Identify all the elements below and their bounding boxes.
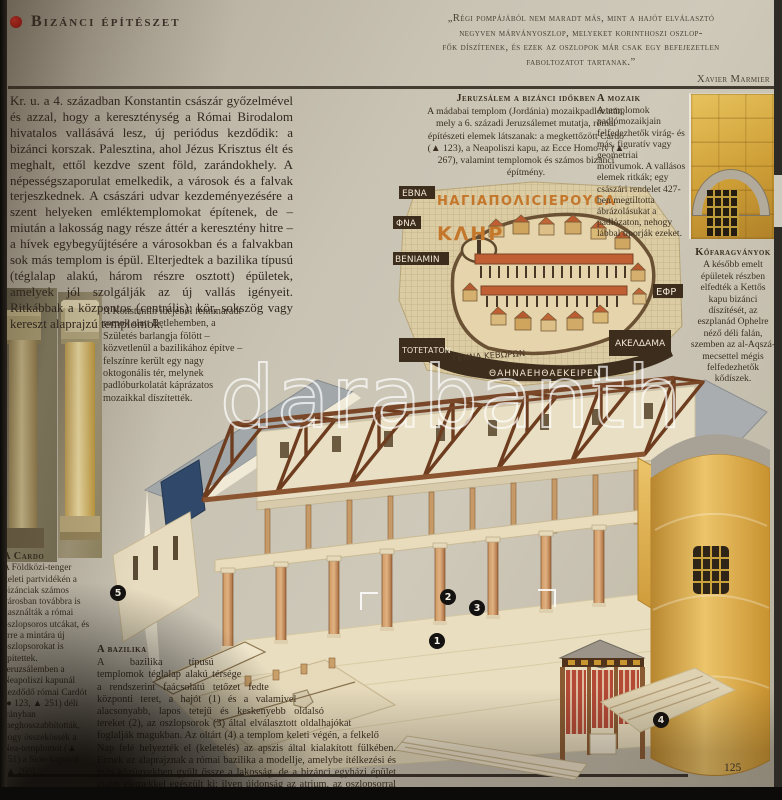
key-marker-3: 3 xyxy=(469,600,485,616)
page-number: 125 xyxy=(724,762,741,774)
page-title: Bizánci építészet xyxy=(31,13,181,31)
page-edge-sliver xyxy=(774,175,782,227)
key-marker-2: 2 xyxy=(440,589,456,605)
svg-text:ΑΚΕΛΔΑΜΑ: ΑΚΕΛΔΑΜΑ xyxy=(615,339,666,349)
cardo-text: A Földközi-tenger keleti partvidékén a b… xyxy=(3,563,93,778)
quote-line: „Régi pompájából nem maradt más, mint a … xyxy=(388,12,774,27)
stone-carvings-section: Kőfaragványok A később emelt épületek ré… xyxy=(690,247,776,385)
svg-text:ΗΑΓΙΑΠΟΛΙCΙΕΡΟΥCΑ: ΗΑΓΙΑΠΟΛΙCΙΕΡΟΥCΑ xyxy=(437,194,616,209)
photo-edge-left xyxy=(0,0,7,800)
key-marker-4: 4 xyxy=(653,712,669,728)
svg-text:ΒΕΝΙΑΜΙΝ: ΒΕΝΙΑΜΙΝ xyxy=(395,255,440,265)
cardo-section: A Cardo A Földközi-tenger keleti partvid… xyxy=(3,551,93,778)
epigraph-quote: „Régi pompájából nem maradt más, mint a … xyxy=(388,12,774,88)
apse-tower xyxy=(651,454,770,775)
quote-line: negyven márványoszlop, melyeket korintho… xyxy=(388,27,774,42)
photo-edge-bottom xyxy=(0,787,782,800)
column-shaft xyxy=(65,342,95,518)
red-bullet-icon xyxy=(10,16,22,28)
svg-text:ΦΝΑ: ΦΝΑ xyxy=(396,219,417,229)
basilica-section: A bazilika A bazilika típusú templomok t… xyxy=(97,644,396,800)
masthead: Bizánci építészet xyxy=(10,10,181,34)
mosaic-section: A mozaik A templomok padlómozaikjain fel… xyxy=(597,93,686,240)
column-shaft xyxy=(9,340,37,530)
cardo-heading: A Cardo xyxy=(3,551,93,562)
quote-attribution: Xavier Marmier xyxy=(388,73,774,88)
mosaic-heading: A mozaik xyxy=(597,93,686,104)
constantine-caption: A Konstantin idejéből fennmaradt romok a… xyxy=(103,306,246,405)
stone-heading: Kőfaragványok xyxy=(690,247,776,258)
photo-edge-right xyxy=(774,0,782,800)
grille-window xyxy=(707,190,739,236)
watermark-bracket-right xyxy=(538,589,556,607)
mosaic-text: A templomok padlómozaikjain felfedezhető… xyxy=(597,105,686,239)
svg-text:ΕΦΡ: ΕΦΡ xyxy=(656,287,676,298)
stone-text: A később emelt épületek részben elfedték… xyxy=(690,259,776,384)
column-base xyxy=(60,516,100,540)
stone-arch-photo xyxy=(689,93,777,239)
key-marker-1: 1 xyxy=(429,633,445,649)
svg-text:ΚΛΗΡ: ΚΛΗΡ xyxy=(437,223,504,245)
quote-line: fők díszítenek, és ezek az oszlopok már … xyxy=(388,41,774,56)
watermark-bracket-left xyxy=(360,592,378,610)
intro-paragraph: Kr. u. a 4. században Konstantin császár… xyxy=(10,93,293,332)
svg-text:ΕΒΝΑ: ΕΒΝΑ xyxy=(402,189,428,199)
book-page-photo: Bizánci építészet „Régi pompájából nem m… xyxy=(0,0,782,800)
column-base xyxy=(4,528,44,548)
narthex-wall xyxy=(113,512,199,642)
key-marker-5: 5 xyxy=(110,585,126,601)
quote-line: faboltozatot tartanak.” xyxy=(388,56,774,71)
